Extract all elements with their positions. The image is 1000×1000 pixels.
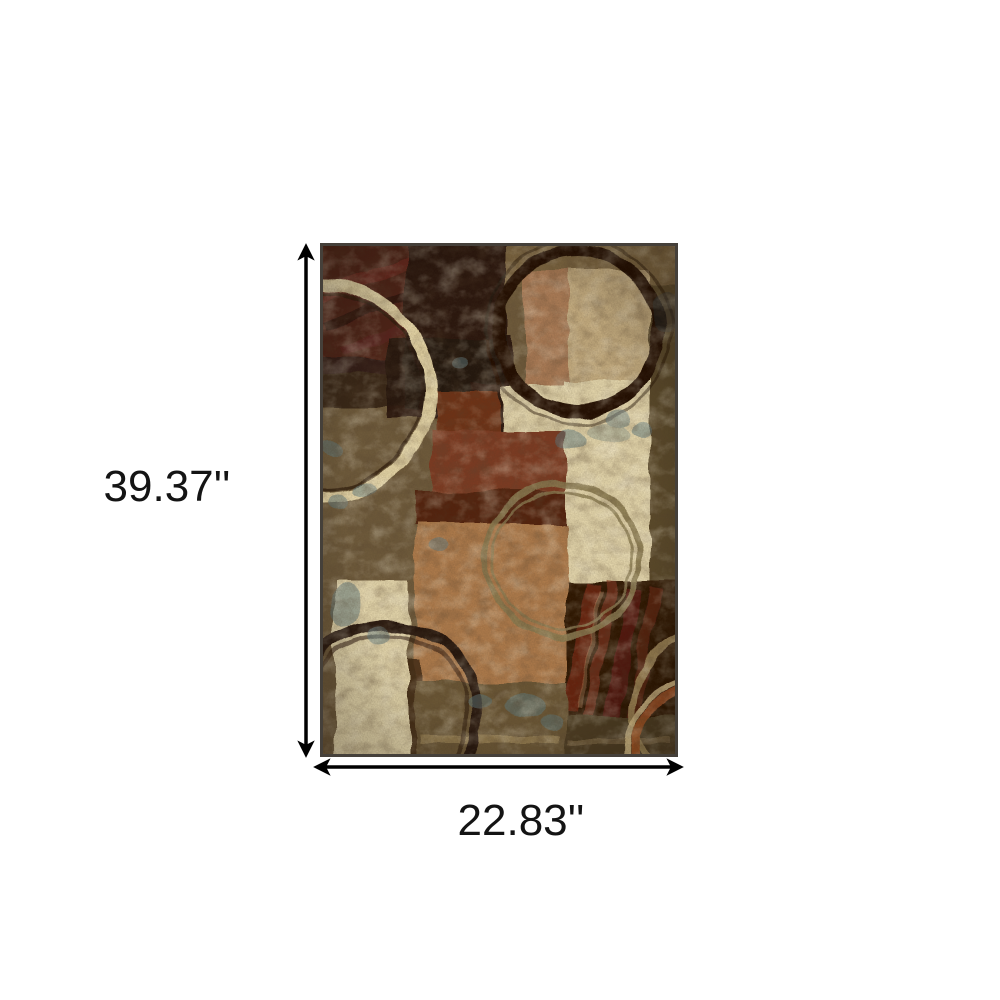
rug-image [320, 243, 678, 757]
rug-vignette [320, 243, 678, 757]
rug-artwork [320, 243, 678, 757]
product-dimension-diagram: 39.37'' 22.83'' [0, 0, 1000, 1000]
height-dimension-label: 39.37'' [104, 462, 231, 512]
width-dimension-label: 22.83'' [458, 796, 585, 846]
